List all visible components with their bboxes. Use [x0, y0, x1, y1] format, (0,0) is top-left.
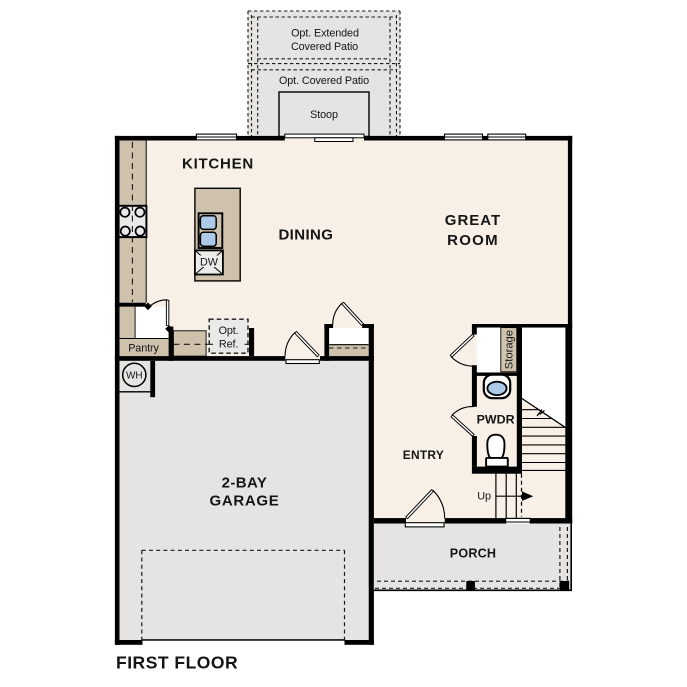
svg-text:Opt.: Opt. [219, 325, 239, 337]
svg-text:ROOM: ROOM [447, 232, 499, 249]
svg-text:DW: DW [200, 256, 219, 268]
svg-text:GARAGE: GARAGE [209, 493, 279, 510]
svg-text:Covered Patio: Covered Patio [291, 41, 358, 53]
svg-text:PWDR: PWDR [477, 412, 515, 426]
svg-text:Pantry: Pantry [128, 342, 159, 354]
svg-text:DINING: DINING [278, 226, 333, 243]
svg-text:WH: WH [126, 370, 143, 381]
svg-text:Opt. Covered Patio: Opt. Covered Patio [279, 75, 369, 87]
svg-text:Stoop: Stoop [310, 109, 338, 121]
svg-text:KITCHEN: KITCHEN [182, 156, 254, 173]
svg-text:PORCH: PORCH [450, 547, 496, 561]
svg-text:Up: Up [477, 490, 491, 502]
svg-text:Ref.: Ref. [219, 338, 239, 350]
svg-text:FIRST FLOOR: FIRST FLOOR [116, 652, 238, 672]
svg-text:Opt. Extended: Opt. Extended [291, 28, 359, 40]
svg-text:Storage: Storage [504, 330, 516, 369]
svg-text:2-BAY: 2-BAY [222, 474, 268, 491]
svg-text:GREAT: GREAT [445, 212, 501, 229]
svg-text:ENTRY: ENTRY [403, 448, 444, 462]
